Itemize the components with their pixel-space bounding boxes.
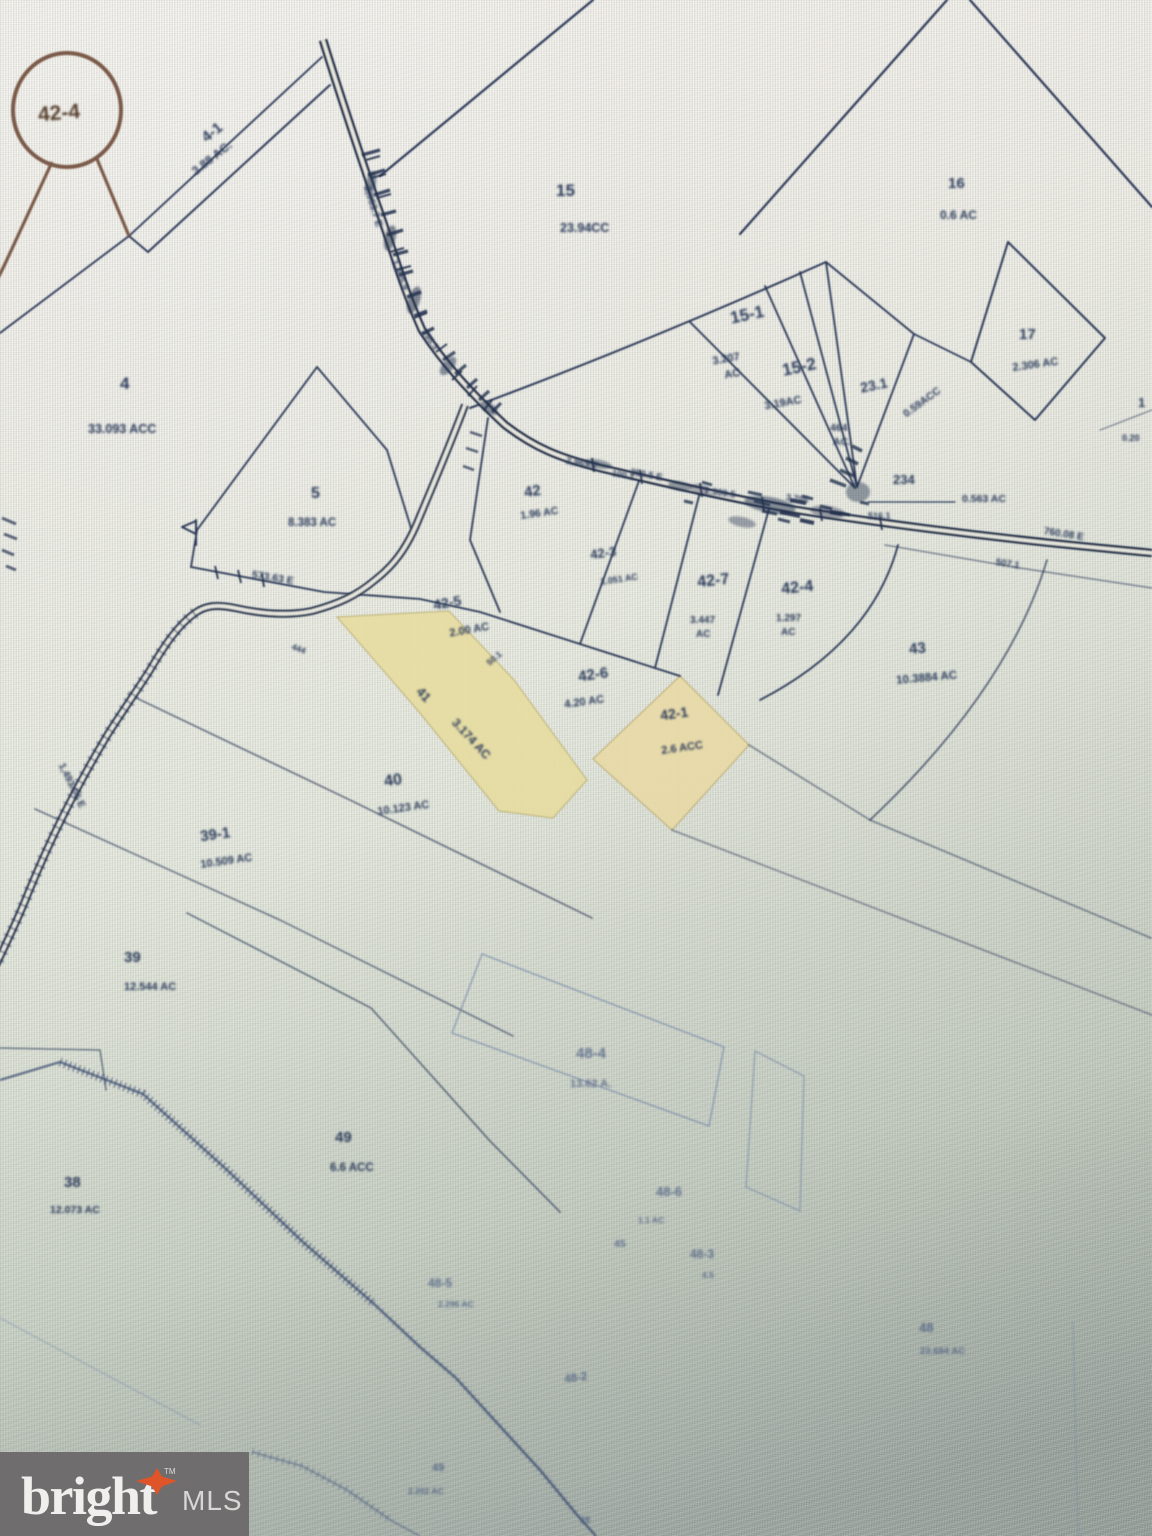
svg-text:42-7: 42-7 bbox=[696, 571, 730, 591]
svg-text:1.297: 1.297 bbox=[776, 613, 801, 624]
svg-text:6.6 ACC: 6.6 ACC bbox=[330, 1162, 374, 1174]
svg-text:12.073 AC: 12.073 AC bbox=[50, 1204, 100, 1216]
svg-text:4: 4 bbox=[120, 374, 130, 393]
svg-text:8.383 AC: 8.383 AC bbox=[288, 517, 336, 529]
svg-text:0.20: 0.20 bbox=[1122, 433, 1140, 443]
svg-text:3.447: 3.447 bbox=[690, 615, 715, 626]
svg-text:bright: bright bbox=[21, 1466, 158, 1526]
svg-text:2.296 AC: 2.296 AC bbox=[438, 1299, 474, 1309]
svg-text:45: 45 bbox=[614, 1238, 626, 1250]
svg-text:48-4: 48-4 bbox=[576, 1045, 607, 1062]
svg-text:4.5: 4.5 bbox=[702, 1270, 714, 1280]
svg-text:48-6: 48-6 bbox=[656, 1184, 682, 1199]
svg-text:48-5: 48-5 bbox=[428, 1276, 452, 1290]
svg-text:15: 15 bbox=[556, 181, 575, 200]
svg-text:AC: AC bbox=[696, 629, 710, 640]
svg-text:AC.: AC. bbox=[833, 436, 851, 448]
svg-text:38: 38 bbox=[64, 1174, 81, 1191]
svg-text:23.94CC: 23.94CC bbox=[560, 221, 609, 235]
svg-text:234: 234 bbox=[893, 472, 915, 487]
svg-text:42-4: 42-4 bbox=[37, 100, 81, 127]
svg-text:5: 5 bbox=[311, 485, 320, 502]
svg-text:13.62 A.: 13.62 A. bbox=[570, 1078, 611, 1090]
svg-text:48-3: 48-3 bbox=[690, 1247, 714, 1261]
svg-text:12.544 AC: 12.544 AC bbox=[124, 981, 176, 993]
svg-text:464: 464 bbox=[830, 422, 848, 434]
svg-text:43: 43 bbox=[908, 639, 926, 657]
svg-text:16: 16 bbox=[948, 175, 965, 192]
svg-text:0.6 AC: 0.6 AC bbox=[940, 208, 977, 222]
svg-text:42: 42 bbox=[523, 482, 542, 501]
svg-text:TM: TM bbox=[164, 1467, 176, 1476]
svg-text:49: 49 bbox=[335, 1129, 352, 1146]
svg-text:0.563 AC: 0.563 AC bbox=[962, 493, 1006, 505]
svg-text:28: 28 bbox=[580, 1515, 590, 1525]
svg-text:2.202 AC: 2.202 AC bbox=[408, 1486, 444, 1496]
svg-text:MLS: MLS bbox=[182, 1485, 243, 1516]
svg-text:1.1 AC: 1.1 AC bbox=[638, 1215, 664, 1225]
svg-text:17: 17 bbox=[1019, 326, 1036, 343]
svg-text:39: 39 bbox=[124, 949, 141, 966]
svg-text:AC: AC bbox=[781, 627, 795, 638]
svg-text:40: 40 bbox=[383, 771, 403, 790]
svg-text:516.1: 516.1 bbox=[868, 511, 891, 521]
svg-text:1: 1 bbox=[1138, 395, 1145, 410]
svg-text:23.684 AC: 23.684 AC bbox=[920, 1346, 965, 1357]
svg-text:33.093 ACC: 33.093 ACC bbox=[88, 422, 156, 436]
svg-text:48: 48 bbox=[919, 1320, 933, 1335]
svg-text:49: 49 bbox=[432, 1462, 444, 1474]
svg-text:42-4: 42-4 bbox=[780, 578, 814, 598]
